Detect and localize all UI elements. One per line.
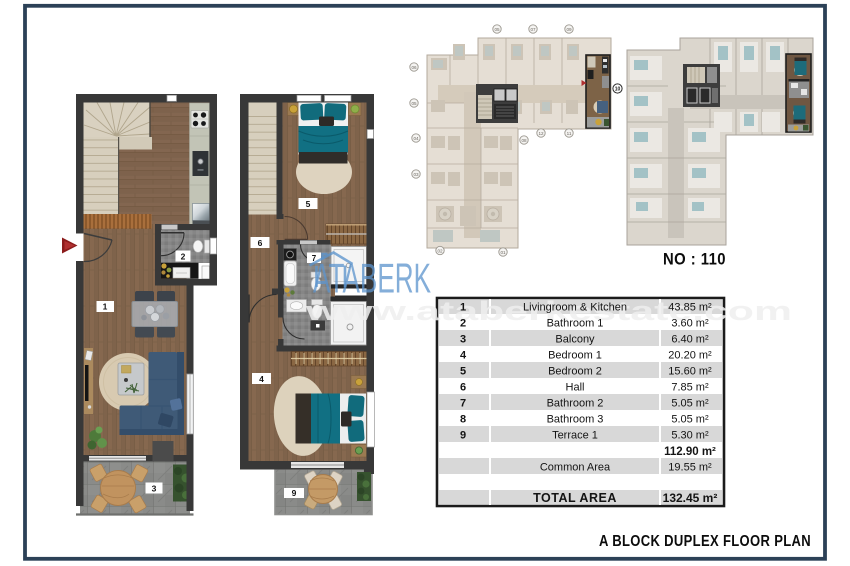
svg-text:20.20 m²: 20.20 m² [668,350,712,362]
svg-text:11: 11 [567,131,572,136]
svg-text:3.60 m²: 3.60 m² [671,318,709,330]
svg-text:5: 5 [306,199,311,209]
svg-text:05: 05 [494,27,500,32]
svg-text:Hall: Hall [566,382,585,394]
svg-text:5: 5 [460,366,466,378]
svg-text:Bedroom 1: Bedroom 1 [548,350,602,362]
svg-text:2: 2 [181,251,186,261]
svg-text:6.40 m²: 6.40 m² [671,334,709,346]
svg-text:8: 8 [460,414,466,426]
svg-text:05: 05 [411,101,417,106]
svg-text:1: 1 [103,302,108,312]
svg-text:5.05 m²: 5.05 m² [671,398,709,410]
svg-text:9: 9 [292,488,297,498]
svg-text:6: 6 [258,238,263,248]
svg-text:19.55 m²: 19.55 m² [668,462,712,474]
svg-text:12: 12 [538,131,544,136]
svg-text:3: 3 [152,483,157,493]
svg-text:4: 4 [259,374,264,384]
svg-text:43.85 m²: 43.85 m² [668,302,712,314]
svg-text:1: 1 [460,302,466,314]
svg-text:Bathroom 2: Bathroom 2 [547,398,604,410]
svg-text:02: 02 [437,248,443,253]
svg-text:3: 3 [460,334,466,346]
svg-text:Terrace 1: Terrace 1 [552,430,598,442]
svg-text:07: 07 [530,27,536,32]
svg-text:6: 6 [460,382,466,394]
svg-text:01: 01 [500,250,506,255]
svg-text:9: 9 [460,430,466,442]
svg-text:132.45 m²: 132.45 m² [663,491,718,505]
svg-text:Bathroom 3: Bathroom 3 [547,414,604,426]
svg-text:A BLOCK DUPLEX FLOOR PLAN: A BLOCK DUPLEX FLOOR PLAN [599,533,811,550]
svg-text:ATABERK: ATABERK [313,255,431,302]
svg-text:TOTAL AREA: TOTAL AREA [533,491,617,505]
svg-text:03: 03 [413,172,419,177]
svg-text:Balcony: Balcony [555,334,595,346]
svg-text:Livingroom & Kitchen: Livingroom & Kitchen [523,302,627,314]
svg-text:7.85 m²: 7.85 m² [671,382,709,394]
svg-text:7: 7 [460,398,466,410]
svg-text:15.60 m²: 15.60 m² [668,366,712,378]
svg-text:06: 06 [411,65,417,70]
svg-text:Common Area: Common Area [540,462,611,474]
svg-text:10: 10 [615,86,621,92]
svg-text:Bedroom 2: Bedroom 2 [548,366,602,378]
svg-text:112.90 m²: 112.90 m² [664,446,716,458]
svg-text:5.05 m²: 5.05 m² [671,414,709,426]
svg-text:4: 4 [460,350,467,362]
svg-text:5.30 m²: 5.30 m² [671,430,709,442]
svg-text:04: 04 [413,136,419,141]
svg-text:NO : 110: NO : 110 [663,251,726,269]
svg-text:Bathroom 1: Bathroom 1 [547,318,604,330]
svg-text:08: 08 [521,138,527,143]
svg-text:2: 2 [460,318,466,330]
svg-text:09: 09 [566,27,572,32]
